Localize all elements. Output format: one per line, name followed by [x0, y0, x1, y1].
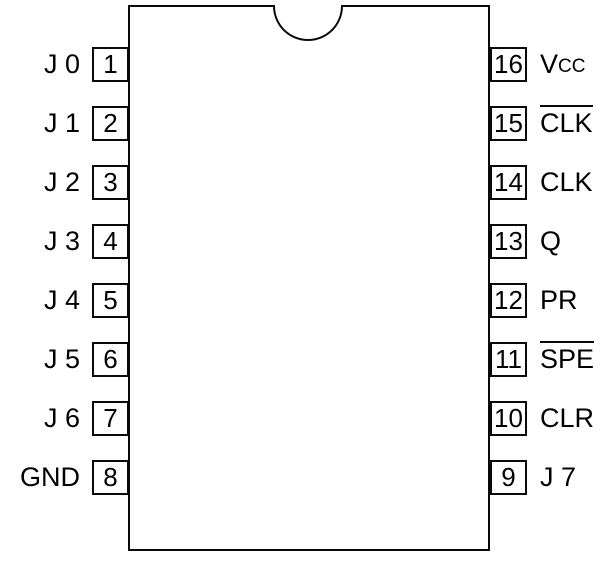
pin-label: VCC [540, 47, 585, 82]
pin-row: 12PR [0, 283, 607, 318]
pin-label-text-overline: CLK [540, 105, 593, 137]
pin-label: J 7 [540, 460, 576, 495]
pin-label: SPE [540, 342, 594, 377]
pin-number: 12 [494, 285, 523, 316]
pin-number: 9 [501, 462, 515, 493]
pin-label-text: J 7 [540, 462, 576, 493]
pin-number-box: 13 [490, 224, 527, 259]
pin-label: PR [540, 283, 578, 318]
pin-row: 16VCC [0, 47, 607, 82]
pin-row: 15CLK [0, 106, 607, 141]
pin-row: 14CLK [0, 165, 607, 200]
pin-number: 11 [495, 344, 522, 375]
pin-number-box: 10 [490, 401, 527, 436]
pin-label-subscript: CC [558, 56, 585, 78]
pin-row: 10CLR [0, 401, 607, 436]
pin-label-text: PR [540, 285, 578, 316]
pin-label-text-overline: SPE [540, 341, 594, 373]
pin-label-text: V [540, 49, 558, 80]
pin-number-box: 9 [490, 460, 527, 495]
pin-number-box: 15 [490, 106, 527, 141]
pin-label-text: CLK [540, 167, 593, 198]
pin-row: 13Q [0, 224, 607, 259]
pin-row: 9J 7 [0, 460, 607, 495]
pin-number: 10 [494, 403, 523, 434]
pin-number: 16 [494, 49, 523, 80]
pin-number: 15 [494, 108, 523, 139]
pin-number-box: 14 [490, 165, 527, 200]
pin-label-text: Q [540, 226, 561, 257]
pin-row: 11SPE [0, 342, 607, 377]
pin-number-box: 11 [490, 342, 527, 377]
pin-number: 13 [494, 226, 523, 257]
pin-label: CLK [540, 165, 593, 200]
pin-label: CLK [540, 106, 593, 141]
pin-label-text: CLR [540, 403, 594, 434]
pin-number-box: 12 [490, 283, 527, 318]
pin-number: 14 [494, 167, 523, 198]
pin-number-box: 16 [490, 47, 527, 82]
pin-label: Q [540, 224, 561, 259]
pin-label: CLR [540, 401, 594, 436]
ic-pinout-diagram: 1J 02J 13J 24J 35J 46J 57J 68GND16VCC15C… [0, 0, 607, 576]
